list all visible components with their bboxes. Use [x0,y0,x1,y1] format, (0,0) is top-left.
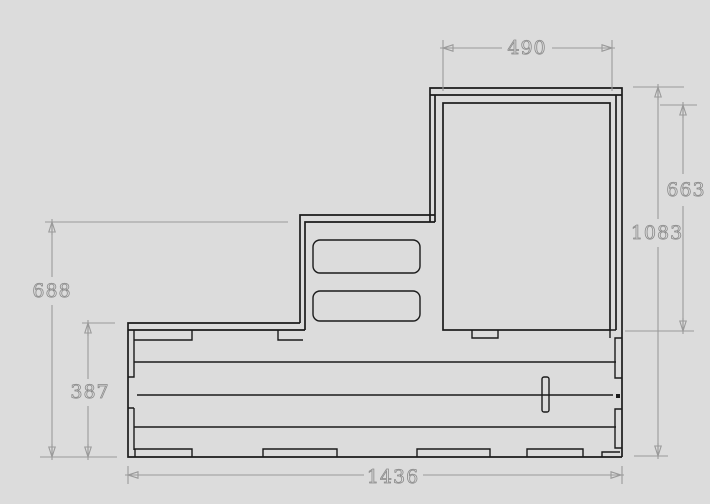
extension-lines [625,105,697,331]
arrowhead-down-icon [655,443,661,459]
dimension-label-total-height: 1083 [631,222,683,244]
base-outline [128,323,622,457]
arrowhead-up-icon [655,84,661,100]
tall-cabinet [430,88,622,457]
dimension-door-height: 663 [625,102,706,334]
arrowhead-down-icon [680,318,686,334]
arrowhead-up-icon [49,219,55,235]
arrowhead-up-icon [680,102,686,118]
dimension-label-top-width: 490 [507,37,546,59]
dimension-label-base-height: 387 [70,381,109,403]
base-right-inner-brackets [615,338,622,448]
dimension-total-width: 1436 [125,466,624,488]
base-bottom-cleats [135,449,583,457]
cad-viewport: 490 663 1083 688 [0,0,710,504]
arrowhead-up-icon [85,320,91,336]
base-left-inner-edge [128,330,134,450]
arrowhead-down-icon [85,444,91,460]
arrowhead-down-icon [49,444,55,460]
arrowhead-left-icon [125,472,141,478]
door-bottom-notch [472,330,610,338]
base-top-cleats [134,330,303,340]
drawer-front-bottom [313,291,420,321]
drawer-front-top [313,240,420,273]
cabinet-door [443,103,610,330]
technical-drawing: 490 663 1083 688 [0,0,710,504]
fastener-dot [616,394,620,398]
dimension-base-height: 387 [70,320,115,460]
base-unit [128,323,622,457]
drawer-unit [300,215,435,330]
dimension-top-width: 490 [440,37,615,91]
dimension-total-height: 1083 [631,84,684,459]
arrowhead-right-icon [599,45,615,51]
dimension-label-step-height: 688 [32,280,71,302]
dimension-label-door-height: 663 [666,179,705,201]
dimension-label-total-width: 1436 [367,466,419,488]
cabinet-outline [430,88,622,457]
arrowhead-left-icon [440,45,456,51]
